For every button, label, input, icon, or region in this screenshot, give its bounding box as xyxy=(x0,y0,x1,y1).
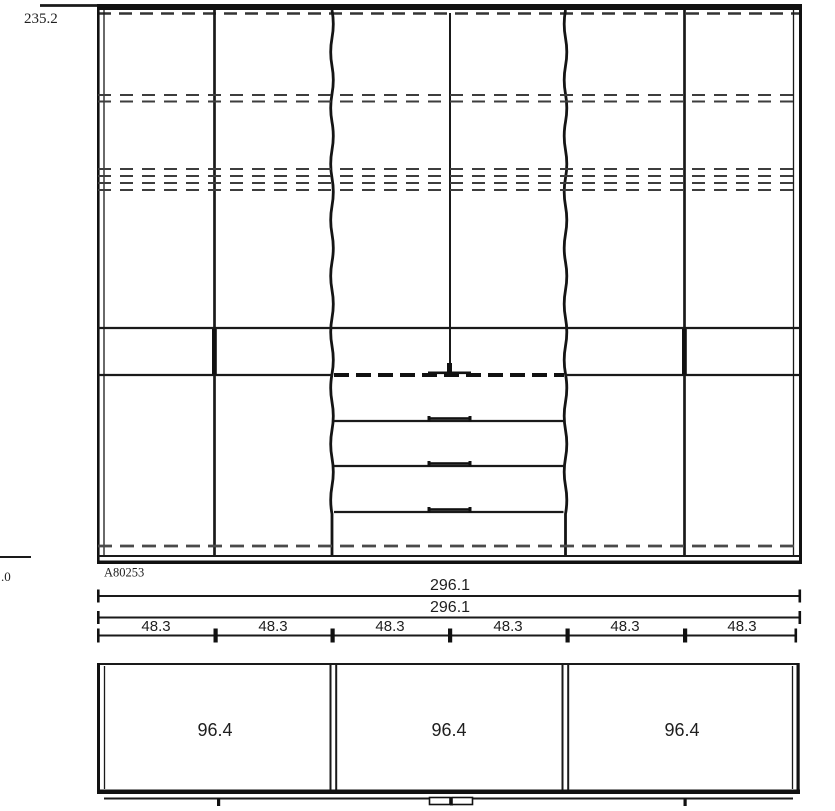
dimension-end-tick xyxy=(97,611,100,624)
drawer-handle xyxy=(428,462,471,465)
plan-base-detail xyxy=(104,797,793,806)
drawer-handles xyxy=(428,363,472,513)
drawer-handle xyxy=(428,508,471,511)
plan-section-label: 96.4 xyxy=(197,720,232,740)
drawer-handle-tick xyxy=(428,416,431,422)
rail-post xyxy=(682,329,687,375)
drawer-handle-tick xyxy=(469,416,472,422)
plan-center-foot xyxy=(452,798,473,805)
left-partial-dimension-label: .0 xyxy=(1,569,11,584)
elevation-top-edge xyxy=(97,4,802,10)
blueprint-page: 235.2 .0 xyxy=(0,0,835,811)
width-dimension-total-2: 296.1 xyxy=(97,599,801,624)
plan-center-foot xyxy=(430,798,451,805)
dimension-tick xyxy=(683,629,687,643)
dimension-tick xyxy=(331,629,335,643)
drawer-handle-tick xyxy=(428,461,431,467)
plan-view: 96.4 96.4 96.4 xyxy=(97,663,800,806)
dimension-end-tick xyxy=(97,629,100,643)
section-dimension-label: 48.3 xyxy=(727,618,756,635)
plan-foot-tick xyxy=(217,798,220,806)
width-dimension-2-label: 296.1 xyxy=(430,599,470,616)
drawer-handle-tick xyxy=(469,461,472,467)
dimension-end-tick xyxy=(97,590,100,603)
dimension-end-tick xyxy=(795,629,798,643)
drawer-stack xyxy=(334,363,564,513)
elevation-right-edge xyxy=(799,4,802,564)
plan-foot-tick xyxy=(684,798,687,806)
plan-right-edge xyxy=(797,663,800,793)
drawer-top-center-tick xyxy=(447,363,452,375)
dimension-end-tick xyxy=(799,611,802,624)
section-dimension-label: 48.3 xyxy=(141,618,170,635)
elevation-view: A80253 xyxy=(97,4,802,580)
drawer-handle xyxy=(428,417,471,420)
drawer-handle-tick xyxy=(428,507,431,513)
door-dividers xyxy=(215,10,685,556)
dimension-tick xyxy=(448,629,452,643)
door-divider-wavy-line xyxy=(331,10,334,556)
height-dimension-label: 235.2 xyxy=(24,11,58,27)
elevation-left-edge xyxy=(97,4,100,564)
dimension-tick xyxy=(566,629,570,643)
section-dimension-label: 48.3 xyxy=(493,618,522,635)
drawer-handle-tick xyxy=(469,507,472,513)
door-divider-wavy-line xyxy=(564,10,567,556)
section-dimension-label: 48.3 xyxy=(610,618,639,635)
rail-post xyxy=(212,329,217,375)
plan-left-edge xyxy=(97,663,100,793)
plan-bottom-edge xyxy=(97,790,800,795)
section-dimension-label: 48.3 xyxy=(258,618,287,635)
width-dimension-1-label: 296.1 xyxy=(430,577,470,594)
section-dimension-label: 48.3 xyxy=(375,618,404,635)
dimension-tick xyxy=(214,629,218,643)
left-partial-dimension: .0 xyxy=(0,557,31,584)
elevation-plinth xyxy=(97,546,802,564)
plan-section-label: 96.4 xyxy=(664,720,699,740)
item-code-label: A80253 xyxy=(104,566,144,580)
section-dimensions: 48.3 48.3 48.3 48.3 48.3 48.3 xyxy=(97,618,797,643)
elevation-bottom-edge xyxy=(97,561,802,565)
plan-section-label: 96.4 xyxy=(431,720,466,740)
wardrobe-technical-drawing: 235.2 .0 xyxy=(0,0,835,811)
dimension-end-tick xyxy=(799,590,802,603)
